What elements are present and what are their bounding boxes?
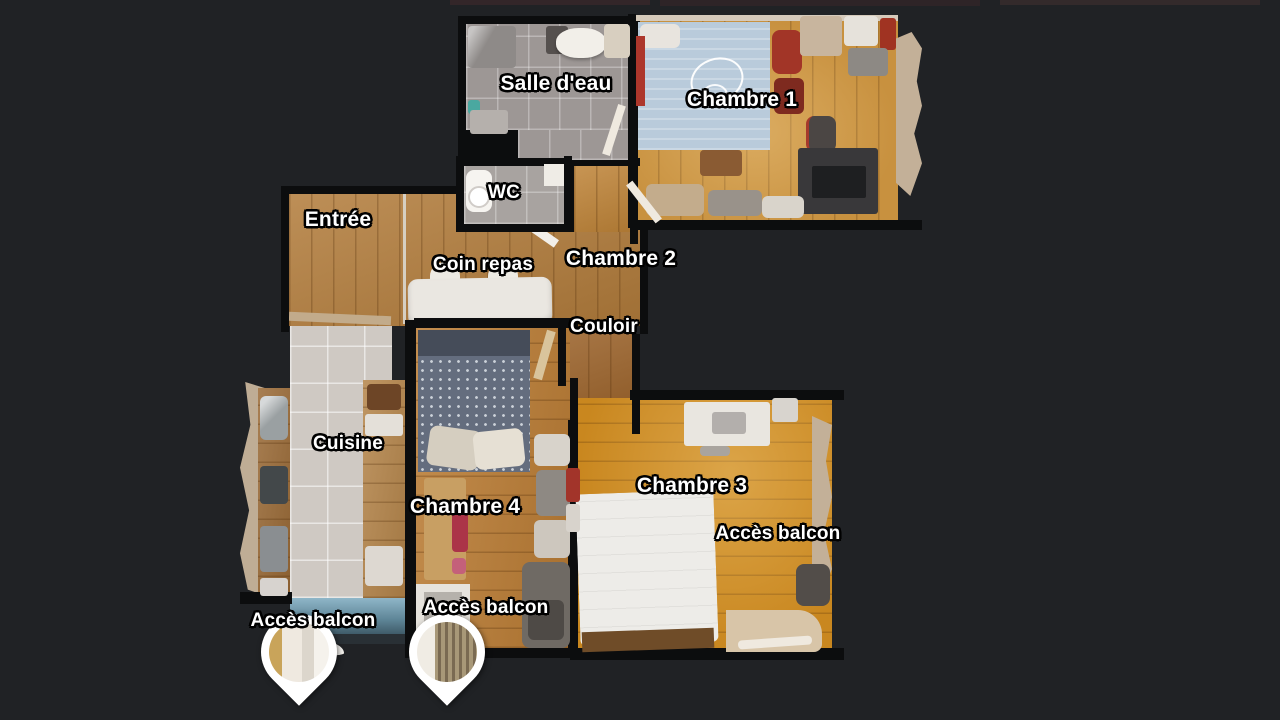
desk-chair-item — [700, 446, 730, 456]
wall — [630, 390, 844, 400]
floor-divider-line — [403, 194, 406, 324]
label-cuisine: Cuisine — [313, 433, 383, 455]
pink-item — [452, 558, 466, 574]
towels — [604, 24, 630, 58]
wall — [632, 220, 922, 230]
toilet-bowl — [468, 186, 490, 208]
shelf-items — [848, 48, 888, 76]
wall — [632, 334, 640, 434]
wall — [281, 186, 463, 194]
floor-clutter — [700, 150, 742, 176]
side-clutter — [534, 434, 570, 466]
label-salle-deau: Salle d'eau — [500, 72, 611, 96]
sink-basin — [556, 28, 606, 58]
wall — [458, 16, 640, 24]
balcony-pin-chambre4[interactable] — [409, 614, 485, 690]
label-chambre1: Chambre 1 — [687, 88, 797, 112]
room-cuisine-floor[interactable] — [290, 384, 364, 598]
wall — [408, 320, 416, 658]
bread-box — [367, 384, 401, 410]
label-acces-balcon-chambre3: Accès balcon — [716, 523, 841, 545]
label-entree: Entrée — [305, 208, 372, 232]
label-acces-balcon-chambre4: Accès balcon — [424, 597, 549, 619]
shelf-item — [772, 398, 798, 422]
wall — [558, 324, 566, 386]
floorplan-canvas: Salle d'eau Chambre 1 WC Entrée Coin rep… — [0, 0, 1280, 720]
side-clutter — [536, 470, 570, 516]
room-chambre2-upper-floor[interactable] — [574, 162, 630, 232]
mattress — [575, 490, 718, 647]
wall — [564, 156, 572, 232]
scan-fragment — [1000, 0, 1260, 5]
pillow — [640, 24, 680, 48]
wall — [456, 156, 464, 232]
kitchen-sink — [260, 396, 288, 440]
tv-screen — [812, 166, 866, 198]
dark-furniture — [796, 564, 830, 606]
appliance — [260, 526, 288, 572]
wall — [414, 318, 578, 328]
wall — [281, 186, 289, 332]
label-chambre3: Chambre 3 — [637, 474, 747, 498]
room-cuisine-floor[interactable] — [290, 326, 392, 384]
laptop — [712, 412, 746, 434]
stove-pot — [260, 466, 288, 504]
label-acces-balcon-cuisine: Accès balcon — [251, 610, 376, 632]
bath-counter — [470, 110, 508, 134]
red-blanket — [636, 36, 645, 106]
scan-fragment — [450, 0, 650, 5]
gaming-chair — [806, 116, 836, 152]
side-clutter — [534, 520, 570, 558]
balcony-photo — [417, 622, 477, 682]
label-chambre4: Chambre 4 — [410, 495, 520, 519]
pillow — [472, 427, 526, 470]
wall — [640, 228, 648, 334]
counter-items — [260, 578, 288, 596]
shower — [468, 26, 516, 68]
wall-right-jagged — [896, 32, 922, 196]
desk-chair-red — [772, 30, 802, 74]
door-panel — [544, 164, 564, 186]
scan-fragment — [660, 0, 980, 6]
label-wc: WC — [488, 182, 520, 204]
wall-clutter — [566, 468, 580, 502]
label-chambre2: Chambre 2 — [566, 247, 676, 271]
bed-fold — [418, 330, 530, 356]
wall-clutter — [566, 504, 580, 532]
shelf-items — [844, 16, 878, 46]
shelf-items — [880, 18, 896, 50]
shelf-items — [800, 16, 842, 56]
counter-items — [365, 546, 403, 586]
floor-clutter — [708, 190, 762, 216]
floor-clutter — [762, 196, 804, 218]
label-coin-repas: Coin repas — [433, 254, 533, 276]
label-couloir: Couloir — [570, 316, 638, 338]
